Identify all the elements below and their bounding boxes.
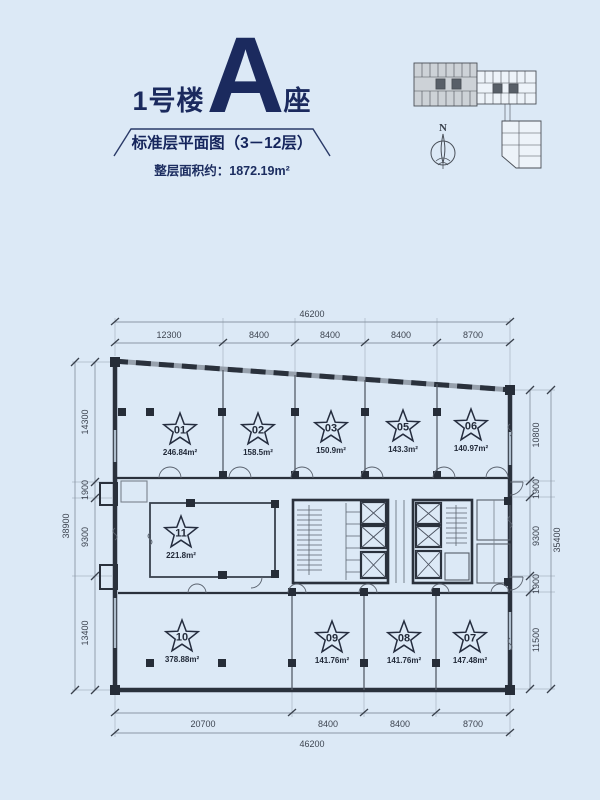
- column: [218, 408, 226, 416]
- column: [218, 571, 227, 579]
- block-letter: A: [207, 31, 282, 120]
- door-icon: [486, 467, 508, 478]
- column: [146, 659, 154, 667]
- unit-marker-11: 11 221.8m²: [165, 516, 197, 560]
- dim-left-seg: 9300: [80, 527, 90, 547]
- column: [504, 497, 512, 505]
- unit-marker-05: 05 143.3m²: [387, 410, 419, 454]
- door-icon: [159, 467, 181, 478]
- dimension-labels-right: 10800 1900 9300 1900 11500 35400: [531, 422, 562, 652]
- extension-lines: [72, 318, 555, 737]
- column: [432, 588, 440, 596]
- elevator-x-icon: [416, 551, 441, 578]
- building-title: 1号楼 A 座: [92, 12, 352, 120]
- dim-right-seg: 1900: [531, 574, 541, 594]
- unit-marker-01: 01 246.84m²: [163, 413, 198, 457]
- door-swings: [159, 467, 523, 593]
- site-key-building-b: [477, 71, 536, 104]
- dim-top-seg: 8400: [249, 330, 269, 340]
- column: [118, 408, 126, 416]
- unit-area: 143.3m²: [388, 445, 418, 454]
- floor-area-label: 整层面积约：1872.19m²: [92, 160, 352, 179]
- core-right-room: [445, 553, 469, 580]
- plan-title: 标准层平面图（3－12层）: [131, 133, 313, 152]
- window-break-marks: [113, 424, 512, 650]
- unit-marker-10: 10 378.88m²: [165, 620, 200, 664]
- dim-right-seg: 1900: [531, 479, 541, 499]
- unit-number: 09: [326, 633, 338, 645]
- dim-top-overall: 46200: [299, 309, 324, 319]
- building-number-label: 1号楼: [132, 88, 204, 120]
- stair-left-icon: [297, 505, 322, 575]
- column: [219, 471, 227, 479]
- door-icon: [251, 577, 262, 588]
- lobby-passage-walls: [396, 500, 404, 583]
- column: [186, 499, 195, 507]
- compass-needle: [441, 134, 445, 163]
- column: [432, 659, 440, 667]
- dim-right-seg: 10800: [531, 422, 541, 447]
- dim-bottom-seg: 8400: [318, 719, 338, 729]
- column: [291, 408, 299, 416]
- unit-area: 150.9m²: [316, 446, 346, 455]
- site-key-core-b1: [493, 84, 502, 93]
- left-service-room: [121, 481, 147, 502]
- dimension-lines: [75, 322, 551, 733]
- exterior-walls: [100, 357, 515, 695]
- lower-unit-partitions: [292, 593, 436, 690]
- site-key-building-c: [502, 121, 541, 168]
- dim-left-seg: 14300: [80, 409, 90, 434]
- north-label: N: [439, 122, 447, 134]
- unit-number: 05: [397, 422, 409, 434]
- unit-marker-07: 07 147.48m²: [453, 621, 488, 665]
- column: [218, 659, 226, 667]
- column: [271, 500, 279, 508]
- dim-left-overall: 38900: [61, 513, 71, 538]
- site-key-plan: [414, 63, 541, 168]
- dim-bottom-seg: 8700: [463, 719, 483, 729]
- dimension-labels-bottom: 20700 8400 8400 8700 46200: [190, 719, 483, 749]
- column: [504, 578, 512, 586]
- dim-top-seg: 8400: [391, 330, 411, 340]
- core-right: [413, 500, 472, 583]
- column: [360, 588, 368, 596]
- unit-area: 378.88m²: [165, 655, 200, 664]
- unit-number: 01: [174, 425, 186, 437]
- dim-top-seg: 12300: [156, 330, 181, 340]
- dimension-labels-left: 38900 14300 1900 9300 13400: [61, 409, 90, 645]
- unit-marker-03: 03 150.9m²: [315, 411, 347, 455]
- dim-bottom-seg: 8400: [390, 719, 410, 729]
- corner-column: [505, 385, 515, 395]
- stair-right-icon: [446, 505, 467, 546]
- site-key-core-b2: [509, 84, 518, 93]
- elevator-x-icon: [361, 526, 386, 548]
- dimension-ticks: [71, 318, 555, 736]
- unit-marker-02: 02 158.5m²: [242, 413, 274, 457]
- dim-bottom-seg: 20700: [190, 719, 215, 729]
- unit-area: 141.76m²: [315, 656, 350, 665]
- unit-number: 06: [465, 421, 477, 433]
- unit-marker-09: 09 141.76m²: [315, 621, 350, 665]
- dim-top-seg: 8700: [463, 330, 483, 340]
- unit-number: 02: [252, 425, 264, 437]
- dim-left-seg: 1900: [80, 480, 90, 500]
- column: [433, 408, 441, 416]
- site-key-building-a: [414, 63, 477, 106]
- corner-column: [110, 685, 120, 695]
- dimension-labels-top: 46200 12300 8400 8400 8400 8700: [156, 309, 483, 340]
- unit-area: 140.97m²: [454, 444, 489, 453]
- service-room-upper: [477, 500, 510, 540]
- block-suffix-label: 座: [284, 88, 312, 120]
- elevator-x-icon: [416, 526, 441, 547]
- site-key-core-a1: [436, 79, 445, 89]
- service-room-lower: [477, 544, 510, 583]
- dim-right-seg: 11500: [531, 628, 541, 652]
- unit-area: 221.8m²: [166, 551, 196, 560]
- dim-right-overall: 35400: [552, 527, 562, 552]
- dim-top-seg: 8400: [320, 330, 340, 340]
- unit-marker-08: 08 141.76m²: [387, 621, 422, 665]
- unit-number: 10: [176, 632, 188, 644]
- column: [146, 408, 154, 416]
- door-icon: [188, 584, 206, 593]
- title-block: 1号楼 A 座 标准层平面图（3－12层） 整层面积约：1872.19m²: [92, 12, 352, 179]
- dim-bottom-overall: 46200: [299, 739, 324, 749]
- column: [360, 659, 368, 667]
- unit-area: 141.76m²: [387, 656, 422, 665]
- dim-right-seg: 9300: [531, 526, 541, 546]
- unit-number: 03: [325, 423, 337, 435]
- unit-11-walls: [150, 503, 275, 577]
- elevator-x-icon: [416, 503, 441, 524]
- unit-number: 11: [175, 528, 187, 540]
- wc-stalls-icon: [346, 503, 360, 580]
- unit-area: 246.84m²: [163, 448, 198, 457]
- unit-marker-06: 06 140.97m²: [454, 409, 489, 453]
- corner-column: [505, 685, 515, 695]
- core-left: [293, 500, 388, 583]
- site-key-core-a2: [452, 79, 461, 89]
- elevator-x-icon: [361, 552, 386, 578]
- unit-area: 147.48m²: [453, 656, 488, 665]
- elevator-bank-left: [361, 502, 386, 578]
- elevator-bank-right: [416, 503, 441, 578]
- column: [288, 659, 296, 667]
- unit-area: 158.5m²: [243, 448, 273, 457]
- unit-number: 08: [398, 633, 410, 645]
- north-arrow: N: [431, 122, 455, 169]
- dim-left-seg: 13400: [80, 620, 90, 645]
- door-icon: [229, 467, 251, 478]
- unit-number: 07: [464, 633, 476, 645]
- column: [271, 570, 279, 578]
- site-key-connector: [505, 104, 510, 121]
- column: [361, 408, 369, 416]
- corner-column: [110, 357, 120, 367]
- elevator-x-icon: [361, 502, 386, 524]
- service-rooms-right: [477, 497, 512, 586]
